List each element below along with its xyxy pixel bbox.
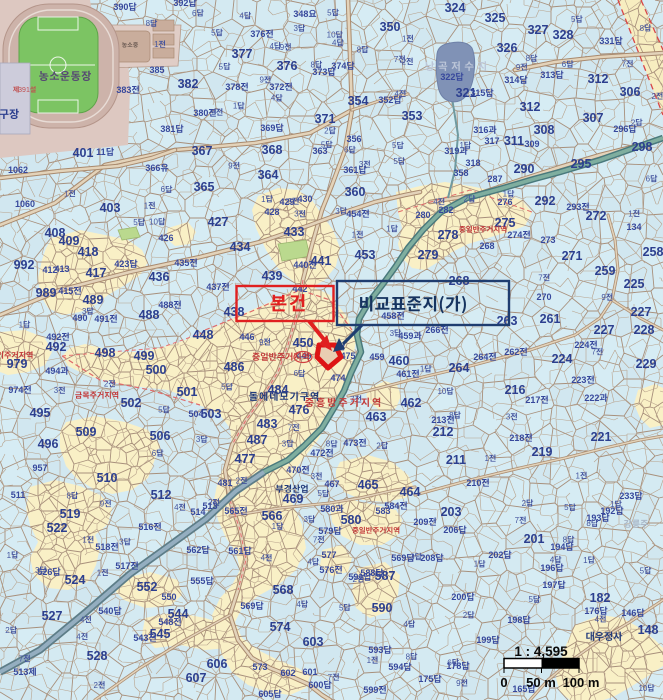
svg-text:600: 600 [308, 680, 323, 690]
svg-text:518: 518 [95, 542, 110, 552]
svg-text:5: 5 [393, 157, 398, 166]
svg-text:527: 527 [42, 609, 63, 623]
svg-text:4: 4 [269, 42, 274, 51]
svg-text:9: 9 [259, 76, 264, 85]
svg-text:279: 279 [418, 248, 439, 262]
svg-text:448: 448 [193, 328, 214, 342]
svg-text:212: 212 [433, 425, 454, 439]
svg-text:175: 175 [418, 674, 433, 684]
svg-text:1: 1 [154, 40, 159, 49]
svg-text:165: 165 [512, 684, 527, 694]
svg-text:417: 417 [86, 266, 107, 280]
svg-text:201: 201 [524, 532, 545, 546]
svg-text:3: 3 [335, 207, 340, 216]
svg-text:377: 377 [232, 47, 253, 61]
svg-text:324: 324 [445, 1, 466, 15]
svg-text:464: 464 [400, 485, 421, 499]
svg-text:579: 579 [318, 526, 333, 536]
svg-text:605: 605 [258, 689, 273, 699]
svg-text:224: 224 [574, 340, 589, 350]
svg-text:100 m: 100 m [563, 675, 600, 690]
svg-text:6: 6 [646, 175, 651, 184]
svg-text:8: 8 [357, 45, 362, 54]
svg-text:1: 1 [583, 556, 588, 565]
svg-text:1: 1 [420, 365, 425, 374]
svg-text:3: 3 [311, 472, 316, 481]
svg-text:8: 8 [66, 491, 71, 500]
svg-text:5: 5 [158, 406, 163, 415]
svg-text:274: 274 [507, 230, 522, 240]
svg-text:361: 361 [343, 165, 358, 175]
svg-text:264: 264 [449, 361, 470, 375]
svg-text:6: 6 [161, 185, 166, 194]
svg-text:590: 590 [372, 601, 393, 615]
svg-text:306: 306 [620, 85, 641, 99]
svg-text:509: 509 [76, 425, 97, 439]
svg-text:5: 5 [321, 140, 326, 149]
svg-text:273: 273 [540, 235, 555, 245]
svg-text:364: 364 [258, 168, 279, 182]
svg-text:430: 430 [297, 194, 312, 204]
svg-text:3: 3 [196, 435, 201, 444]
svg-text:134: 134 [626, 222, 641, 232]
svg-text:199: 199 [476, 635, 491, 645]
svg-text:376: 376 [277, 59, 298, 73]
svg-text:499: 499 [134, 349, 155, 363]
svg-text:569: 569 [240, 601, 255, 611]
svg-text:331: 331 [599, 36, 614, 46]
svg-text:272: 272 [586, 209, 607, 223]
svg-text:328: 328 [553, 28, 574, 42]
svg-text:372: 372 [269, 82, 284, 92]
svg-text:392: 392 [173, 0, 188, 8]
svg-text:5: 5 [392, 141, 397, 150]
svg-text:413: 413 [54, 264, 69, 274]
svg-text:208: 208 [420, 553, 435, 563]
svg-text:268: 268 [479, 241, 494, 251]
svg-text:1: 1 [484, 454, 489, 463]
svg-text:7: 7 [394, 55, 399, 64]
svg-text:211: 211 [446, 453, 466, 467]
svg-text:436: 436 [149, 270, 170, 284]
svg-text:552: 552 [137, 580, 158, 594]
svg-text:3: 3 [390, 329, 395, 338]
svg-text:1: 1 [261, 195, 266, 204]
svg-text:258: 258 [643, 245, 663, 259]
svg-text:483: 483 [257, 417, 278, 431]
svg-text:5: 5 [211, 29, 216, 38]
svg-text:403: 403 [100, 201, 121, 215]
svg-text:460: 460 [389, 354, 410, 368]
svg-text:1: 1 [97, 568, 102, 577]
svg-text:385: 385 [149, 65, 164, 75]
svg-text:7: 7 [538, 274, 543, 283]
svg-text:427: 427 [208, 215, 229, 229]
svg-text:50 m: 50 m [526, 675, 556, 690]
svg-text:568: 568 [273, 583, 294, 597]
svg-text:4: 4 [403, 620, 408, 629]
svg-text:1: 1 [82, 536, 87, 545]
svg-text:463: 463 [366, 410, 387, 424]
svg-text:543: 543 [133, 633, 148, 643]
svg-text:3: 3 [54, 386, 59, 395]
svg-text:371: 371 [315, 112, 336, 126]
svg-text:356: 356 [346, 134, 361, 144]
svg-text:511: 511 [11, 490, 26, 500]
svg-text:8: 8 [586, 519, 591, 528]
svg-text:602: 602 [280, 668, 295, 678]
svg-text:10: 10 [638, 684, 647, 693]
svg-text:576: 576 [319, 565, 334, 575]
svg-text:3: 3 [282, 439, 287, 448]
svg-text:599: 599 [363, 685, 378, 695]
svg-text:481: 481 [217, 478, 232, 488]
svg-text:217: 217 [525, 395, 540, 405]
svg-text:368: 368 [262, 143, 283, 157]
svg-text:2: 2 [93, 681, 98, 690]
svg-text:459: 459 [398, 331, 413, 341]
svg-text:358: 358 [453, 168, 468, 178]
svg-text:1: 1 [64, 189, 69, 198]
svg-text:3: 3 [410, 553, 415, 562]
svg-text:3: 3 [303, 515, 308, 524]
svg-text:216: 216 [505, 383, 526, 397]
svg-text:488: 488 [139, 308, 160, 322]
svg-text:439: 439 [262, 269, 283, 283]
svg-text:317: 317 [484, 136, 499, 146]
svg-text:562: 562 [186, 545, 201, 555]
svg-text:1: 1 [459, 141, 464, 150]
svg-text:311: 311 [504, 134, 524, 148]
svg-text:224: 224 [552, 352, 573, 366]
svg-text:503: 503 [201, 407, 222, 421]
svg-text:1: 1 [367, 656, 372, 665]
svg-text:1 : 4,595: 1 : 4,595 [514, 644, 568, 659]
svg-text:8: 8 [563, 535, 568, 544]
svg-text:992: 992 [14, 258, 35, 272]
svg-text:1: 1 [575, 471, 580, 480]
svg-text:488: 488 [158, 300, 173, 310]
svg-text:313: 313 [540, 70, 555, 80]
svg-text:223: 223 [571, 375, 586, 385]
svg-text:593: 593 [368, 645, 383, 655]
svg-text:266: 266 [425, 325, 440, 335]
svg-text:315: 315 [470, 88, 485, 98]
svg-text:3: 3 [82, 307, 87, 316]
svg-text:2: 2 [402, 57, 407, 66]
svg-text:327: 327 [528, 23, 549, 37]
svg-text:182: 182 [590, 591, 611, 605]
svg-text:6: 6 [447, 658, 452, 667]
svg-text:4: 4 [271, 94, 276, 103]
svg-text:5: 5 [221, 383, 226, 392]
svg-text:282: 282 [438, 205, 453, 215]
svg-text:459: 459 [369, 352, 384, 362]
svg-text:492: 492 [46, 332, 61, 342]
svg-text:548: 548 [158, 617, 173, 627]
svg-text:5: 5 [219, 62, 224, 71]
svg-text:2: 2 [208, 498, 213, 507]
svg-text:974: 974 [8, 385, 23, 395]
svg-text:1: 1 [474, 560, 479, 569]
svg-text:221: 221 [591, 430, 612, 444]
svg-text:316: 316 [473, 125, 488, 135]
svg-text:469: 469 [283, 492, 304, 506]
svg-text:262: 262 [504, 347, 519, 357]
svg-text:458: 458 [381, 311, 396, 321]
svg-text:4: 4 [550, 556, 555, 565]
svg-text:465: 465 [358, 478, 379, 492]
svg-text:7: 7 [313, 535, 318, 544]
svg-text:366: 366 [145, 163, 160, 173]
svg-text:4: 4 [261, 554, 266, 563]
svg-text:502: 502 [121, 396, 142, 410]
svg-text:461: 461 [396, 369, 411, 379]
svg-text:1: 1 [386, 225, 391, 234]
svg-text:10: 10 [437, 387, 446, 396]
svg-text:4: 4 [433, 198, 438, 207]
svg-text:270: 270 [536, 292, 551, 302]
svg-text:1062: 1062 [8, 165, 28, 175]
svg-text:380: 380 [193, 108, 208, 118]
svg-text:506: 506 [150, 429, 171, 443]
svg-text:9: 9 [228, 162, 233, 171]
svg-text:7: 7 [591, 348, 596, 357]
svg-text:5: 5 [528, 595, 533, 604]
svg-text:354: 354 [348, 94, 369, 108]
svg-text:565: 565 [224, 506, 239, 516]
svg-text:433: 433 [284, 225, 305, 239]
svg-text:213: 213 [431, 415, 446, 425]
svg-text:1: 1 [610, 500, 615, 509]
svg-text:296: 296 [613, 124, 628, 134]
svg-text:9: 9 [601, 293, 606, 302]
svg-text:3: 3 [294, 210, 299, 219]
svg-text:7: 7 [515, 516, 520, 525]
svg-text:1: 1 [19, 320, 24, 329]
svg-text:1: 1 [272, 522, 277, 531]
svg-text:271: 271 [562, 249, 583, 263]
svg-text:325: 325 [485, 11, 506, 25]
svg-text:293: 293 [566, 202, 581, 212]
svg-text:7: 7 [328, 673, 333, 682]
svg-text:550: 550 [161, 592, 176, 602]
svg-text:264: 264 [473, 352, 488, 362]
svg-text:4: 4 [332, 39, 337, 48]
svg-text:462: 462 [401, 396, 422, 410]
svg-text:3: 3 [359, 160, 364, 169]
svg-text:1: 1 [628, 209, 633, 218]
svg-text:566: 566 [262, 509, 283, 523]
svg-text:5: 5 [327, 8, 332, 17]
svg-text:2: 2 [5, 626, 10, 635]
svg-text:322: 322 [440, 72, 455, 82]
svg-text:206: 206 [443, 525, 458, 535]
svg-text:470: 470 [286, 465, 301, 475]
svg-text:580: 580 [320, 504, 335, 514]
svg-text:4: 4 [239, 12, 244, 21]
svg-text:278: 278 [438, 228, 459, 242]
svg-text:440: 440 [293, 260, 308, 270]
svg-text:292: 292 [535, 194, 556, 208]
svg-text:8: 8 [449, 411, 454, 420]
svg-text:454: 454 [346, 209, 361, 219]
svg-text:365: 365 [194, 180, 215, 194]
svg-text:607: 607 [186, 671, 207, 685]
svg-text:1: 1 [233, 102, 238, 111]
svg-text:5: 5 [640, 566, 645, 575]
svg-text:491: 491 [94, 314, 109, 324]
svg-text:209: 209 [413, 517, 428, 527]
svg-text:200: 200 [451, 592, 466, 602]
svg-text:573: 573 [252, 662, 267, 672]
svg-text:295: 295 [571, 157, 592, 171]
svg-text:467: 467 [324, 479, 339, 489]
svg-text:326: 326 [497, 41, 518, 55]
svg-text:2: 2 [324, 127, 329, 136]
svg-text:513: 513 [13, 667, 28, 677]
svg-text:314: 314 [504, 75, 519, 85]
svg-text:418: 418 [78, 245, 99, 259]
svg-text:5: 5 [571, 15, 576, 24]
svg-text:437: 437 [206, 282, 221, 292]
svg-text:290: 290 [514, 162, 535, 176]
svg-text:148: 148 [638, 623, 659, 637]
svg-text:11: 11 [96, 147, 106, 157]
svg-text:4: 4 [80, 615, 85, 624]
svg-text:3: 3 [293, 24, 298, 33]
svg-text:382: 382 [178, 77, 199, 91]
svg-text:989: 989 [36, 286, 57, 300]
svg-text:9: 9 [516, 63, 521, 72]
svg-text:318: 318 [465, 158, 480, 168]
svg-text:5: 5 [564, 503, 569, 512]
svg-text:3: 3 [288, 197, 293, 206]
svg-text:957: 957 [32, 463, 47, 473]
svg-text:603: 603 [303, 635, 324, 649]
svg-text:309: 309 [524, 139, 539, 149]
svg-text:8: 8 [146, 19, 151, 28]
svg-text:307: 307 [583, 111, 604, 125]
svg-text:494: 494 [45, 366, 60, 376]
svg-text:606: 606 [207, 657, 228, 671]
svg-text:3: 3 [506, 413, 511, 422]
svg-text:514: 514 [190, 507, 205, 517]
svg-text:486: 486 [224, 360, 245, 374]
svg-text:381: 381 [160, 124, 175, 134]
svg-text:492: 492 [46, 340, 67, 354]
svg-text:512: 512 [151, 488, 172, 502]
svg-text:8: 8 [526, 54, 531, 63]
svg-text:1060: 1060 [15, 199, 35, 209]
svg-text:225: 225 [624, 277, 645, 291]
svg-text:4: 4 [307, 558, 312, 567]
svg-text:203: 203 [441, 505, 462, 519]
svg-text:9: 9 [100, 500, 105, 509]
svg-text:2: 2 [651, 92, 656, 101]
svg-text:979: 979 [7, 357, 28, 371]
svg-text:7: 7 [19, 655, 24, 664]
svg-text:519: 519 [60, 507, 81, 521]
svg-text:522: 522 [47, 521, 68, 535]
svg-text:4: 4 [394, 89, 399, 98]
svg-text:2: 2 [104, 380, 109, 389]
svg-text:298: 298 [632, 140, 653, 154]
svg-text:438: 438 [224, 305, 245, 319]
svg-text:441: 441 [311, 254, 332, 268]
svg-text:2: 2 [236, 476, 241, 485]
svg-text:415: 415 [58, 286, 73, 296]
svg-text:0: 0 [500, 675, 507, 690]
svg-text:450: 450 [293, 336, 314, 350]
svg-text:275: 275 [495, 216, 516, 230]
svg-text:489: 489 [83, 293, 104, 307]
svg-text:6: 6 [192, 9, 197, 18]
svg-text:8: 8 [640, 24, 645, 33]
svg-text:487: 487 [247, 433, 268, 447]
svg-text:3: 3 [35, 566, 40, 575]
svg-text:580: 580 [341, 513, 362, 527]
svg-text:227: 227 [631, 305, 652, 319]
svg-text:474: 474 [330, 373, 345, 383]
svg-text:2: 2 [352, 575, 357, 584]
svg-text:569: 569 [391, 553, 406, 563]
svg-text:517: 517 [115, 561, 130, 571]
svg-text:594: 594 [388, 662, 403, 672]
svg-text:210: 210 [466, 478, 481, 488]
svg-text:423: 423 [114, 259, 129, 269]
svg-text:555: 555 [190, 576, 205, 586]
svg-text:383: 383 [116, 85, 131, 95]
svg-text:259: 259 [595, 264, 616, 278]
svg-text:6: 6 [152, 449, 157, 458]
svg-text:2: 2 [522, 499, 527, 508]
svg-text:312: 312 [588, 72, 609, 86]
svg-text:3: 3 [119, 538, 124, 547]
svg-text:319: 319 [444, 146, 459, 156]
svg-text:601: 601 [302, 667, 317, 677]
svg-text:561: 561 [228, 546, 243, 556]
svg-text:229: 229 [636, 357, 657, 371]
svg-text:496: 496 [38, 437, 59, 451]
svg-text:524: 524 [65, 573, 86, 587]
svg-text:4: 4 [174, 503, 179, 512]
svg-text:197: 197 [542, 580, 557, 590]
svg-text:202: 202 [488, 550, 503, 560]
svg-text:218: 218 [509, 433, 524, 443]
svg-text:6: 6 [344, 146, 349, 155]
svg-text:472: 472 [310, 448, 325, 458]
svg-text:516: 516 [138, 522, 153, 532]
svg-text:453: 453 [355, 248, 376, 262]
svg-text:1: 1 [352, 231, 357, 240]
svg-text:222: 222 [584, 393, 599, 403]
svg-text:2: 2 [376, 441, 381, 450]
svg-text:2: 2 [631, 118, 636, 127]
svg-text:369: 369 [260, 123, 275, 133]
svg-text:7: 7 [622, 60, 627, 69]
svg-text:498: 498 [95, 346, 116, 360]
svg-text:473: 473 [343, 438, 358, 448]
svg-text:378: 378 [225, 82, 240, 92]
svg-text:6: 6 [294, 369, 299, 378]
svg-text:348: 348 [293, 9, 308, 19]
svg-text:10: 10 [149, 218, 158, 227]
svg-text:4: 4 [296, 600, 301, 609]
svg-text:8: 8 [310, 60, 315, 69]
svg-text:1: 1 [402, 35, 407, 44]
svg-text:574: 574 [270, 620, 291, 634]
